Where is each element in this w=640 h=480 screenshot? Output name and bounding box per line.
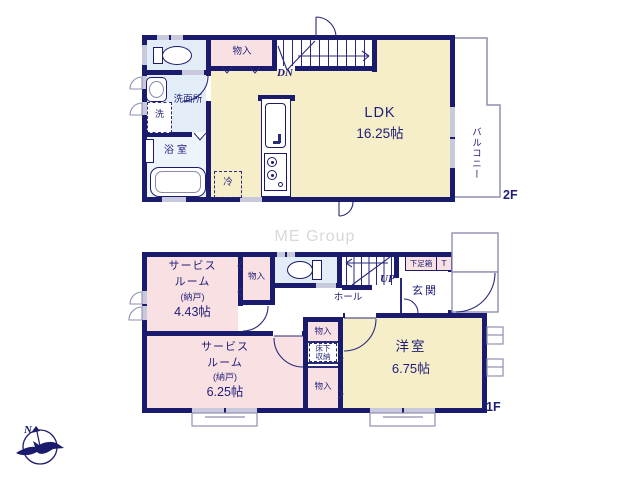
entry-door-gap [448, 272, 453, 310]
bathroom-label: 浴室 [158, 146, 196, 157]
bath-door-gap [192, 132, 206, 137]
service1-name-2: ルーム [147, 277, 238, 289]
wall [142, 197, 455, 202]
washroom-label: 洗面所 [168, 95, 208, 105]
service1-name-1: サービス [147, 261, 238, 273]
window-tick [402, 408, 404, 413]
wall [303, 317, 343, 322]
storage-mid-label: 物入 [308, 327, 338, 336]
door-gap [238, 306, 243, 331]
door-gap [345, 313, 376, 318]
door-gap [273, 331, 302, 336]
toilet-bowl-icon [287, 261, 313, 279]
service2-size: 6.25帖 [147, 386, 303, 399]
western-room-name: 洋室 [376, 340, 446, 354]
wall [342, 285, 372, 290]
shoe-cabinet-label: 下足箱 [406, 260, 436, 268]
burner-dot [271, 174, 274, 177]
compass-north-label: N [23, 424, 33, 436]
shower-unit-icon [145, 139, 154, 163]
compass-needle-head [31, 426, 40, 433]
window-tick [285, 252, 287, 257]
entrance-label: 玄関 [405, 286, 445, 298]
washer-label: 洗 [149, 110, 170, 119]
toilet-bowl-icon [162, 46, 192, 65]
service2-name-3: (納戸) [147, 373, 303, 382]
window-tick [224, 408, 226, 413]
stairs-2f-treads [283, 40, 375, 66]
storage-hall-label: 物入 [243, 272, 270, 281]
compass-circle [23, 430, 57, 464]
wall [338, 317, 343, 408]
service1-name-3: (納戸) [147, 293, 238, 302]
wall [337, 252, 342, 288]
wall [211, 66, 277, 71]
storage-lower-label: 物入 [308, 382, 338, 391]
burner-dot [271, 161, 274, 164]
stove-knob-icon [278, 182, 283, 187]
floor1-label: 1F [486, 401, 514, 414]
service1-size: 4.43帖 [147, 306, 238, 319]
vent-windows [129, 77, 142, 320]
window [240, 197, 262, 202]
watermark: ME Group [270, 228, 360, 246]
stairs-down-label: DN [277, 68, 303, 80]
service2-name-1: サービス [147, 342, 303, 354]
window [142, 45, 147, 65]
toilet-door [316, 283, 336, 288]
wall [206, 35, 211, 202]
wall [376, 313, 487, 318]
fridge-label: 冷 [216, 178, 240, 188]
ldk-name: LDK [335, 106, 425, 121]
t-cabinet-label: T [436, 259, 452, 268]
wall [238, 300, 275, 305]
window-tick [169, 35, 171, 40]
window-tick [450, 137, 455, 139]
toilet-tank-icon [312, 260, 322, 280]
faucet-icon [273, 141, 280, 144]
compass-needle [36, 427, 41, 451]
porch-outline [452, 233, 498, 312]
compass: N [16, 424, 64, 464]
hall-label: ホール [328, 293, 368, 303]
western-room-size: 6.75帖 [376, 362, 446, 376]
closet-divider [308, 362, 338, 364]
bathtub-inner-icon [155, 171, 201, 193]
window [162, 197, 186, 202]
floor2-label: 2F [503, 189, 531, 202]
ldk-size: 16.25帖 [335, 127, 425, 141]
toilet-door [182, 70, 204, 75]
wall [482, 313, 487, 413]
wall [142, 35, 455, 40]
balcony-label: バルコニー [470, 120, 480, 186]
floor-plan: N ME Group 物入 洗面所 洗 浴室 冷 LDK 16.25帖 DN バ… [0, 0, 640, 480]
closet-divider [308, 366, 338, 368]
compass-bird-icon [16, 441, 64, 455]
underfloor-label-2: 収納 [310, 353, 336, 361]
sink-basin-icon [149, 81, 164, 98]
stairs-up-label: UP [380, 274, 406, 286]
wall [270, 252, 275, 305]
service2-name-2: ルーム [147, 358, 303, 370]
storage-2f-label: 物入 [213, 47, 271, 57]
